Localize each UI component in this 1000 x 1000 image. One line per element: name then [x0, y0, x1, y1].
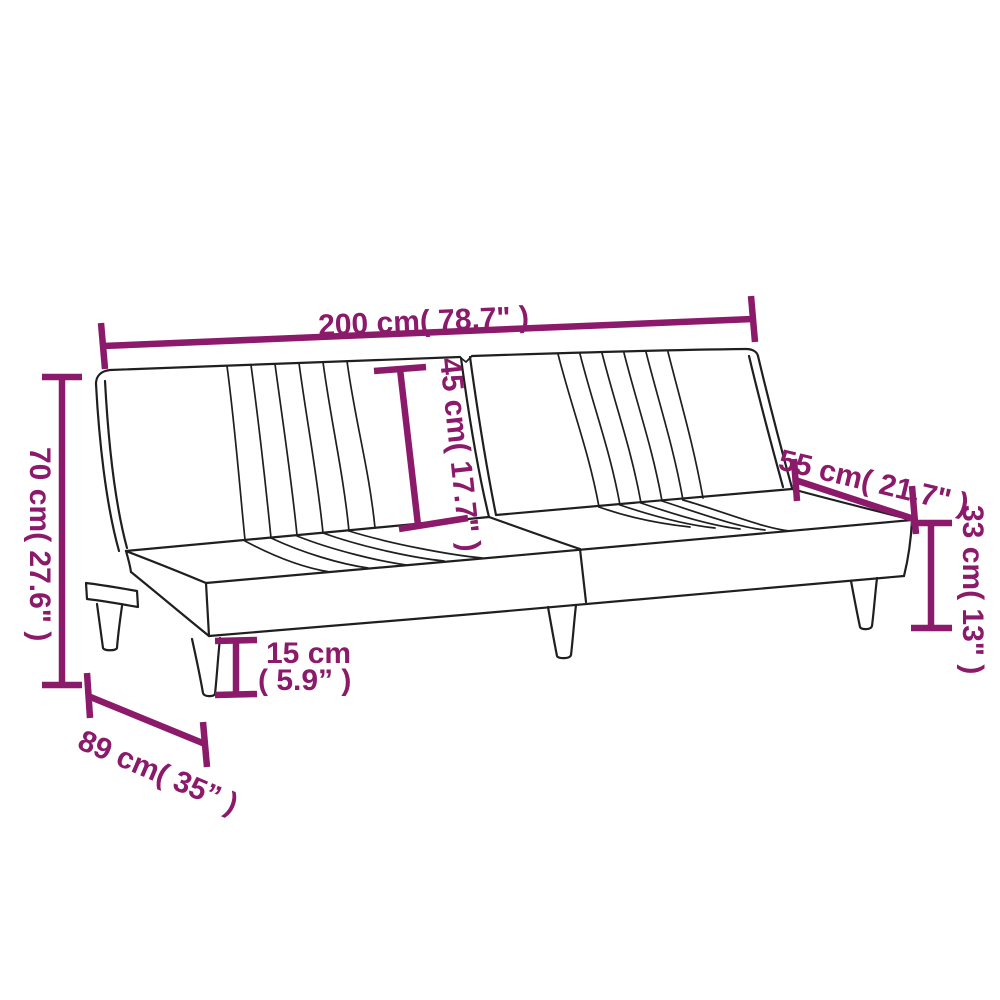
dimension-backrest-height: 45 cm( 17.7" ) [374, 356, 486, 553]
pleat-line [299, 363, 323, 533]
dimension-leg-height-label-line2: ( 5.9” ) [258, 664, 351, 697]
dimension-leg-height: 15 cm ( 5.9” ) [215, 637, 351, 697]
stitch-line [323, 533, 444, 561]
pleat-line [251, 365, 271, 538]
pleat-line [646, 352, 683, 500]
backrest-right-pleats [558, 352, 703, 507]
dim-tick-right [751, 296, 755, 342]
dimension-overall-depth-label: 89 cm( 35” ) [73, 724, 242, 821]
base-and-legs [86, 578, 877, 696]
backrest-left-pleats [227, 361, 375, 540]
pleat-line [275, 364, 297, 535]
dim-tick-right [203, 722, 207, 767]
dimension-seat-height-label: 33 cm( 13" ) [956, 505, 989, 674]
seat-bottom-edge [209, 576, 904, 636]
base-rail [86, 583, 138, 607]
seat-front-right-edge [904, 520, 912, 576]
pleat-line [227, 366, 245, 540]
seat [126, 489, 912, 636]
seat-front-left-corner-edge [206, 583, 209, 636]
dimension-overall-height-label: 70 cm( 27.6" ) [23, 447, 56, 641]
pleat-line [668, 352, 703, 498]
leg-middle [548, 605, 576, 658]
dim-tick-left [101, 323, 105, 369]
seat-front-top-edge [206, 520, 912, 583]
leg-back-left [97, 604, 122, 650]
pleat-line [558, 354, 599, 507]
pleat-line [323, 362, 349, 531]
pleat-line [347, 361, 375, 528]
pleat-line [624, 353, 662, 501]
seat-right-stitch-lines [599, 500, 790, 531]
stitch-line [297, 536, 406, 565]
seat-face-split-line [580, 549, 586, 602]
pleat-line [602, 353, 641, 503]
backrest-right-bottom-seam [496, 489, 792, 515]
backrest-right-panel [472, 349, 792, 515]
seat-left-face-left-edge [126, 551, 131, 572]
pleat-line [580, 354, 620, 505]
dimension-overall-width-label: 200 cm( 78.7" ) [317, 301, 529, 343]
dim-line [400, 369, 418, 525]
backrest-left-edge-inner [105, 381, 127, 548]
dim-cap-bottom [215, 694, 257, 695]
dimension-seat-height: 33 cm( 13" ) [911, 505, 989, 674]
dim-cap-top [215, 640, 257, 641]
sofa-illustration [86, 349, 912, 696]
leg-front-left [192, 638, 220, 696]
diagram-canvas: 200 cm( 78.7" ) 45 cm( 17.7" ) 55 cm( 21… [0, 0, 1000, 1000]
leg-right [851, 578, 877, 629]
stitch-line [599, 507, 690, 527]
seat-cushion-seam [489, 517, 580, 549]
backrest-right-outline [472, 349, 758, 356]
dimension-overall-height: 70 cm( 27.6" ) [23, 377, 82, 685]
sofa-dimension-diagram: 200 cm( 78.7" ) 45 cm( 17.7" ) 55 cm( 21… [0, 0, 1000, 1000]
seat-left-face-bottom-edge [131, 572, 209, 636]
